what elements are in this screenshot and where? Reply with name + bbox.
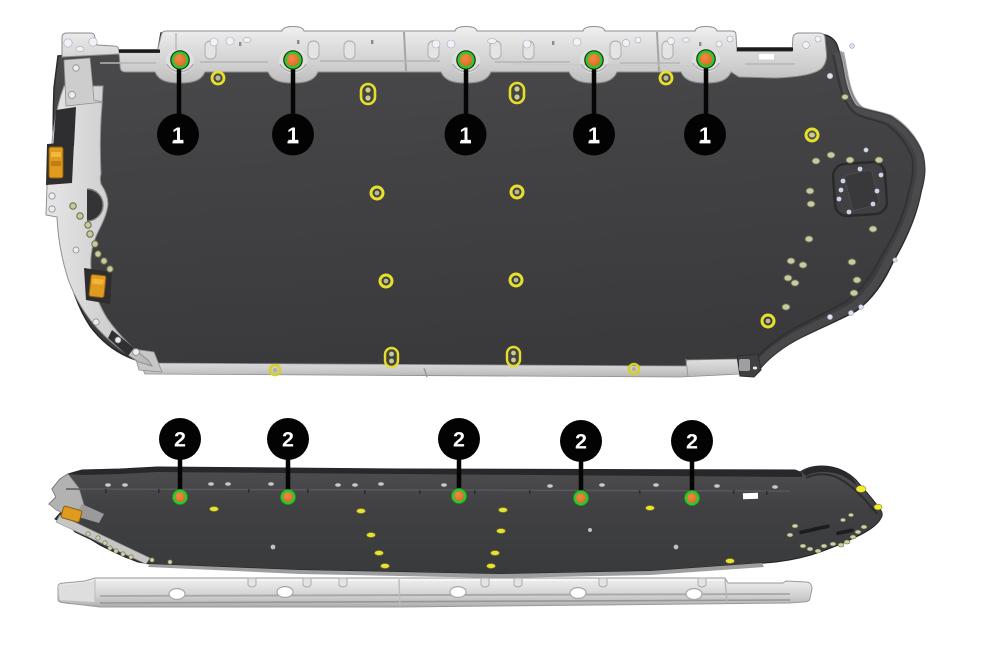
svg-text:2: 2 xyxy=(575,430,587,454)
svg-text:2: 2 xyxy=(453,428,465,452)
svg-text:2: 2 xyxy=(174,428,186,452)
svg-text:2: 2 xyxy=(686,430,698,454)
svg-text:2: 2 xyxy=(282,428,294,452)
